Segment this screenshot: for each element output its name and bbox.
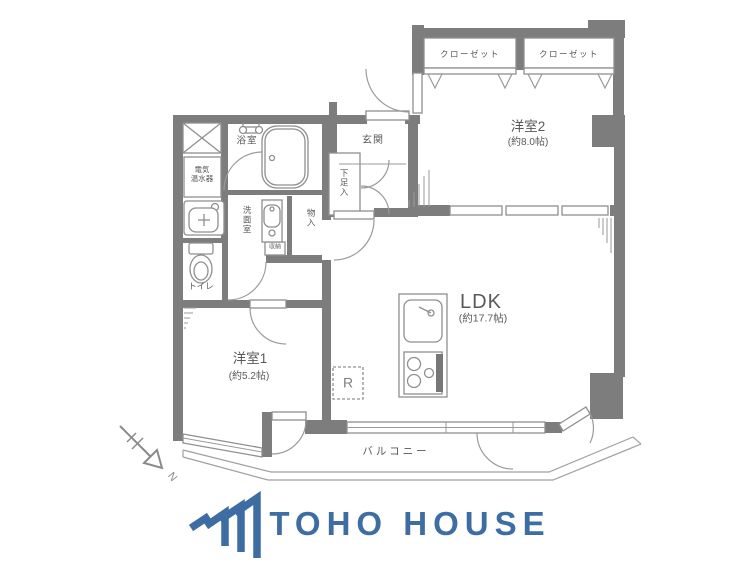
hall-ldk-door-arc bbox=[334, 220, 374, 260]
sliding-panel bbox=[506, 206, 558, 215]
closet-2-rail bbox=[524, 68, 614, 74]
bath-faucet-icon bbox=[240, 123, 263, 134]
kitchen-icon bbox=[399, 294, 447, 397]
label-toilet: トイレ bbox=[188, 281, 214, 291]
folding-door-marks bbox=[428, 74, 612, 88]
label-water-heater: 電気 温水器 bbox=[191, 165, 214, 183]
toilet-icon bbox=[189, 243, 213, 283]
bathtub-icon bbox=[262, 126, 308, 188]
label-ldk-name: LDK bbox=[460, 290, 502, 314]
label-storage: 物入 bbox=[306, 209, 316, 228]
sliding-panel bbox=[450, 206, 502, 215]
label-washroom: 洗面室 bbox=[242, 206, 252, 235]
label-closet-1: クローゼット bbox=[440, 49, 500, 59]
label-closet-2: クローゼット bbox=[539, 49, 599, 59]
corner-door-leaf bbox=[559, 407, 590, 431]
label-bathroom: 浴室 bbox=[236, 135, 257, 146]
label-balcony: バルコニー bbox=[362, 446, 429, 459]
brand-logo-icon bbox=[191, 498, 257, 558]
balcony-outline bbox=[183, 437, 641, 480]
room1-balcony-door-leaf bbox=[272, 412, 306, 420]
floorplan-page: クローゼット クローゼット 洋室2 (約8.0帖) 玄関 下足入 浴室 電気 温… bbox=[0, 0, 750, 563]
room1-balcony-door-arc bbox=[272, 420, 306, 454]
pipe-shaft-icon bbox=[183, 123, 221, 153]
washroom-door-arc bbox=[228, 262, 266, 300]
label-room1-name: 洋室1 bbox=[233, 351, 268, 367]
label-room1-size: (約5.2帖) bbox=[229, 371, 270, 383]
label-refrigerator: R bbox=[343, 375, 353, 392]
room1-door-leaf bbox=[250, 300, 286, 308]
label-entrance: 玄関 bbox=[362, 135, 384, 147]
sliding-panel bbox=[562, 206, 608, 215]
front-door-arc bbox=[366, 69, 409, 112]
vanity-icon bbox=[262, 200, 282, 242]
label-room2-name: 洋室2 bbox=[511, 119, 546, 135]
compass-north-icon bbox=[120, 426, 162, 468]
label-shoe-cabinet: 下足入 bbox=[339, 169, 349, 198]
label-small-storage: 収納 bbox=[269, 244, 281, 251]
hall-ldk-door-leaf bbox=[334, 211, 374, 219]
floorplan-drawing bbox=[0, 0, 750, 563]
brand-name: TOHO HOUSE bbox=[269, 505, 550, 543]
closet-1-rail bbox=[424, 68, 516, 74]
washer-pan-icon bbox=[184, 201, 224, 235]
label-ldk-size: (約17.7帖) bbox=[459, 313, 507, 326]
label-room2-size: (約8.0帖) bbox=[508, 137, 549, 149]
porch-window bbox=[413, 73, 422, 113]
ldk-balcony-door-arc bbox=[477, 433, 513, 469]
kitchen-sink-icon bbox=[404, 300, 442, 342]
front-door-leaf bbox=[366, 111, 409, 120]
bath-door-arc bbox=[224, 152, 262, 190]
room1-door-arc bbox=[250, 308, 286, 344]
